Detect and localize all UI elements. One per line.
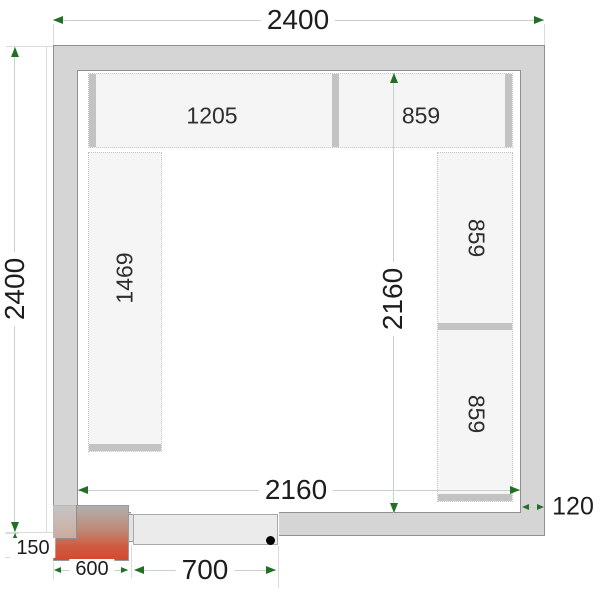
dim-wall-arrow-right [537,504,544,510]
dim-wall-arrow-left [522,504,529,510]
dim-700-arrow-right [266,566,276,574]
cooling-unit-wall-overlap [53,505,77,539]
shelf-end-strip-left-bottom [89,444,161,451]
shelf-end-strip-right [505,74,512,147]
dim-top-arrow-right [534,16,544,24]
dim-600-arrow-right [121,567,128,573]
shelf-divider-top [332,74,339,147]
shelf-end-strip-left [89,74,96,147]
dim-inner-depth-arrow-bottom [390,503,398,513]
dim-inner-depth-label: 2160 [379,262,407,336]
dim-150-label: 150 [10,538,55,558]
dim-top-arrow-left [53,16,63,24]
shelf-label-right-upper: 859 [465,219,488,257]
dim-left-ext-inner [46,47,47,532]
dim-inner-width-label: 2160 [259,476,333,504]
shelf-divider-right [438,323,512,330]
dim-700-ext-right [278,546,279,588]
dim-left-arrow-top [11,47,19,57]
dim-inner-depth-arrow-top [390,73,398,83]
dim-top-ext-left [53,24,54,45]
shelf-top-band [88,73,513,148]
door-panel [133,514,278,545]
dim-top-ext-right [544,24,545,45]
shelf-end-strip-right-bottom [438,494,512,501]
dim-inner-width-arrow-left [78,486,88,494]
shelf-label-top-right: 859 [402,105,440,128]
dim-700-label: 700 [176,556,235,584]
dim-top-label: 2400 [261,6,335,34]
dim-left-label: 2400 [1,252,29,326]
dim-left-arrow-bottom [11,522,19,532]
floor-plan-canvas: 1205 859 1469 859 859 2400 2400 2160 216… [0,0,600,600]
shelf-label-left: 1469 [114,252,137,303]
shelf-label-right-lower: 859 [465,395,488,433]
dim-700-arrow-left [134,566,144,574]
dim-inner-width-arrow-right [510,486,520,494]
dim-600-arrow-left [54,567,61,573]
dim-600-label: 600 [69,559,114,579]
dim-wall-label: 120 [546,495,600,520]
door-lock-dot [266,536,275,545]
dim-700-ext-left [131,545,132,578]
shelf-label-top-left: 1205 [186,105,237,128]
